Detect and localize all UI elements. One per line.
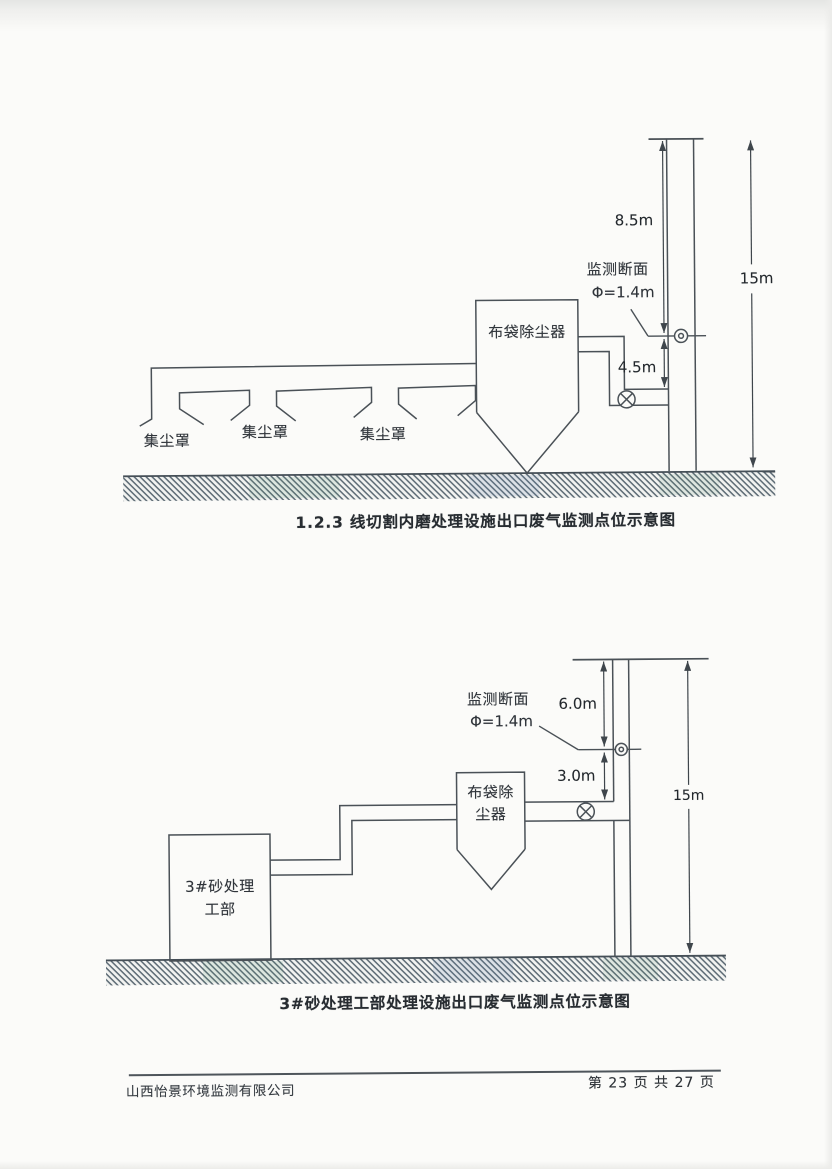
- d2-monitor-point-icon: [615, 743, 627, 755]
- footer-page-number: 第 23 页 共 27 页: [588, 1072, 715, 1093]
- d1-monitor-section-label-line2: Φ=1.4m: [592, 283, 655, 301]
- d2-fan-icon: [577, 803, 594, 820]
- d1-dimensions: [663, 140, 754, 468]
- diagram1: [121, 138, 776, 501]
- d1-caption: 1.2.3 线切割内磨处理设施出口废气监测点位示意图: [295, 508, 676, 533]
- d1-ground: [123, 471, 775, 501]
- d1-stack: [649, 139, 707, 471]
- d1-monitor-section-label-line1: 监测断面: [586, 258, 648, 279]
- d2-monitor-section-label-line2: Φ=1.4m: [470, 712, 533, 730]
- d1-monitor-point-icon: [675, 329, 688, 342]
- scanned-document-page: 8.5m 监测断面 Φ=1.4m 15m 4.5m 布袋除尘器 集尘罩 集尘罩 …: [0, 0, 832, 1169]
- d2-collector-label-line2: 尘器: [457, 803, 525, 826]
- d1-hood-label-2: 集尘罩: [242, 421, 289, 442]
- d1-dim-total-label: 15m: [736, 269, 778, 287]
- d1-hood-duct: [139, 364, 476, 427]
- d2-collector-label: 布袋除 尘器: [457, 781, 525, 826]
- page-content: 8.5m 监测断面 Φ=1.4m 15m 4.5m 布袋除尘器 集尘罩 集尘罩 …: [0, 0, 832, 1169]
- d2-collector-label-line1: 布袋除: [457, 781, 525, 804]
- d2-dim-lower-label: 3.0m: [539, 767, 595, 785]
- d1-collector-label: 布袋除尘器: [476, 321, 578, 343]
- d1-hood-label-3: 集尘罩: [360, 423, 407, 444]
- d2-dim-total-label: 15m: [668, 788, 710, 804]
- d2-monitor-section-label-line1: 监测断面: [467, 688, 529, 709]
- d1-fan-icon: [618, 391, 635, 408]
- d1-hood-3: [398, 386, 475, 420]
- d1-hood-1: [179, 390, 249, 425]
- footer-company: 山西怡景环境监测有限公司: [126, 1079, 295, 1100]
- d1-hood-label-1: 集尘罩: [144, 430, 191, 451]
- d1-dim-lower-label: 4.5m: [600, 358, 656, 376]
- d1-dim-upper-label: 8.5m: [597, 211, 653, 229]
- d2-workshop-label: 3#砂处理 工部: [169, 875, 270, 922]
- d2-caption: 3#砂处理工部处理设施出口废气监测点位示意图: [279, 989, 631, 1014]
- d2-dim-upper-label: 6.0m: [541, 695, 597, 713]
- d2-workshop-label-line2: 工部: [169, 898, 270, 922]
- d2-dimensions: [604, 661, 690, 954]
- diagram2: [104, 659, 727, 986]
- d2-workshop-label-line1: 3#砂处理: [169, 875, 270, 899]
- d1-hood-2: [276, 387, 371, 421]
- d2-inlet-duct: [270, 805, 458, 875]
